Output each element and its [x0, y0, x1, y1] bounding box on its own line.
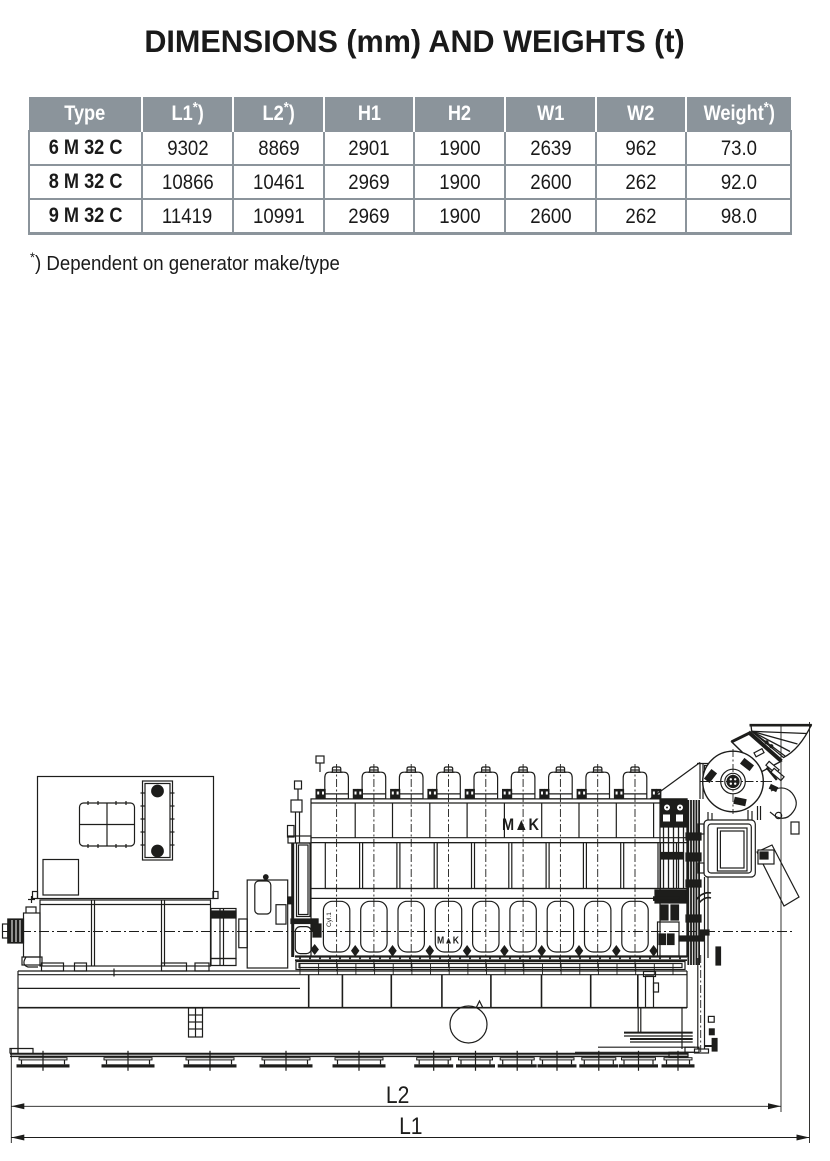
- svg-text:L1: L1: [399, 1113, 422, 1140]
- svg-text:L2: L2: [386, 1082, 409, 1109]
- svg-text:Cyl.1: Cyl.1: [326, 912, 333, 927]
- svg-text:M▲K: M▲K: [502, 815, 540, 834]
